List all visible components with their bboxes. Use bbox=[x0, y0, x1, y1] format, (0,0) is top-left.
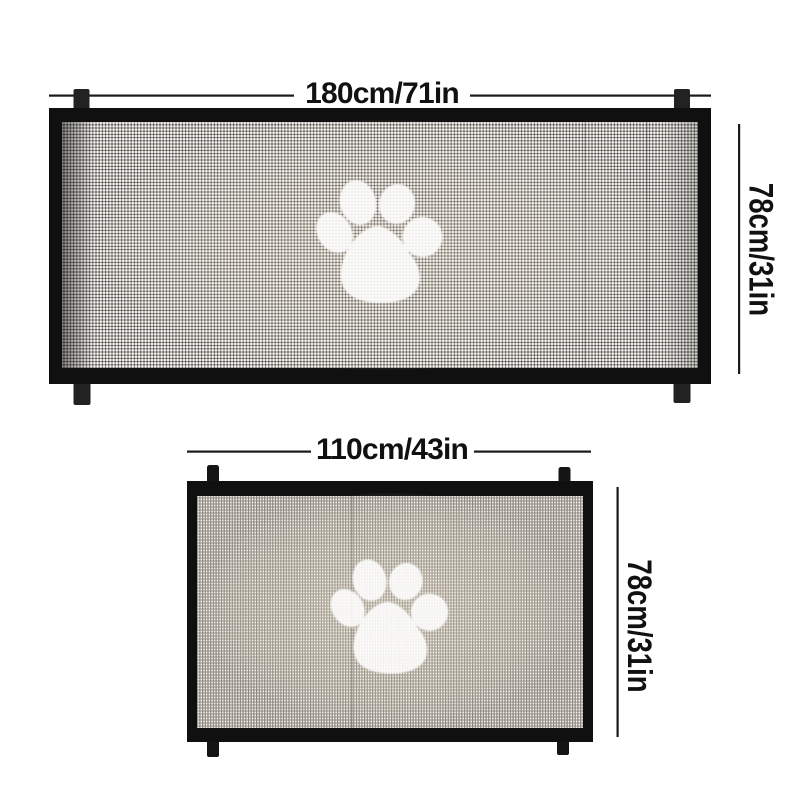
svg-text:110cm/43in: 110cm/43in bbox=[316, 433, 468, 466]
svg-text:78cm/31in: 78cm/31in bbox=[742, 183, 780, 316]
svg-text:180cm/71in: 180cm/71in bbox=[305, 77, 459, 110]
svg-text:78cm/31in: 78cm/31in bbox=[620, 559, 658, 692]
